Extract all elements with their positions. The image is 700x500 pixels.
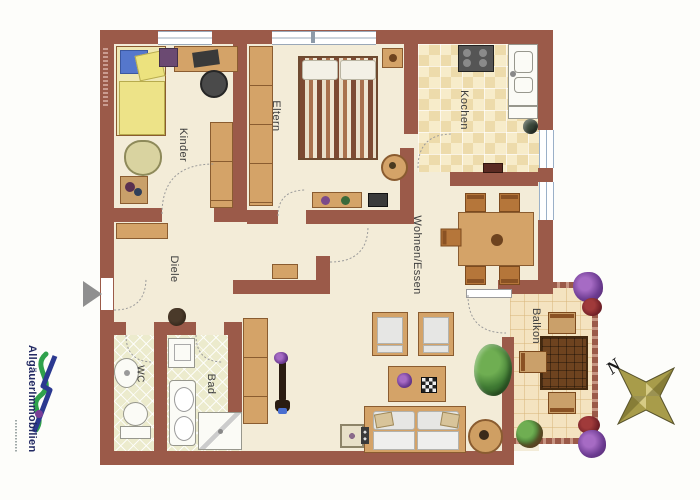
speaker bbox=[361, 427, 369, 444]
eltern-bed bbox=[298, 56, 378, 160]
shower bbox=[198, 412, 242, 450]
washing-machine bbox=[168, 338, 195, 368]
kitchen-corner-plant bbox=[523, 119, 538, 134]
balcony-flowers bbox=[582, 298, 602, 316]
kinder-desk bbox=[174, 46, 238, 72]
sofa bbox=[364, 406, 466, 453]
logo-ai-icon bbox=[34, 356, 55, 432]
dining-chair bbox=[465, 193, 486, 212]
room-label-kinder: Kinder bbox=[177, 128, 189, 162]
kitchen-counter bbox=[508, 44, 538, 106]
wall-kinder-south bbox=[114, 208, 162, 222]
balcony-table bbox=[540, 336, 588, 390]
wall-kinder-south-stub bbox=[214, 208, 233, 222]
hall-sideboard bbox=[116, 223, 168, 239]
wall-eltern-kochen bbox=[404, 44, 418, 134]
coffee-table bbox=[388, 366, 446, 402]
eltern-nightstand bbox=[382, 48, 403, 68]
room-label-balkon: Balkon bbox=[530, 308, 542, 344]
room-label-diele: Diele bbox=[168, 255, 180, 282]
balcony-flowers bbox=[578, 430, 606, 458]
room-label-wc: WC bbox=[135, 365, 146, 382]
kitchen-mat bbox=[483, 163, 503, 173]
kinder-stool bbox=[159, 48, 178, 67]
hall-cabinet-tall bbox=[243, 318, 268, 424]
entrance-opening bbox=[101, 278, 113, 310]
dining-chair bbox=[499, 266, 520, 285]
armchair bbox=[418, 312, 454, 356]
agency-logo: AllgäuerImmobilien bbox=[16, 345, 55, 452]
window-dining-lower bbox=[539, 182, 554, 220]
kinder-bed-blanket bbox=[119, 81, 165, 135]
wall-eltern-south-left bbox=[247, 210, 278, 224]
eltern-sideboard bbox=[312, 192, 362, 208]
balcony-chair bbox=[548, 392, 576, 414]
wall-bad-east bbox=[228, 335, 242, 413]
chessboard bbox=[421, 377, 437, 393]
kitchen-faucet bbox=[510, 71, 516, 77]
wall-wc-north bbox=[114, 322, 126, 335]
dining-chair bbox=[499, 193, 520, 212]
window-eltern bbox=[272, 31, 376, 45]
wall-bottom bbox=[100, 451, 514, 465]
dining-chair bbox=[465, 266, 486, 285]
kinder-desk-chair bbox=[200, 70, 228, 98]
dining-chair bbox=[441, 229, 462, 247]
eltern-stool bbox=[381, 154, 408, 181]
window-dining-upper bbox=[539, 130, 554, 168]
room-label-kochen: Kochen bbox=[458, 90, 470, 130]
eltern-tv bbox=[368, 193, 388, 207]
window-kinder bbox=[158, 31, 212, 45]
logo-company-name: AllgäuerImmobilien bbox=[26, 345, 38, 452]
floor-plan: Kinder Eltern Kochen Wohnen/Essen Diele … bbox=[0, 0, 700, 500]
entrance-arrow bbox=[83, 281, 102, 307]
room-label-eltern: Eltern bbox=[270, 100, 282, 131]
room-label-bad: Bad bbox=[205, 374, 217, 395]
kinder-toybox bbox=[120, 176, 148, 204]
logo-leaf-icon bbox=[36, 354, 47, 430]
wall-bath-north-east bbox=[224, 322, 242, 335]
eltern-pillow-left bbox=[302, 60, 338, 80]
kinder-wardrobe bbox=[210, 122, 233, 208]
window-mullion bbox=[311, 31, 315, 43]
kitchen-cabinet bbox=[508, 106, 538, 119]
logo-dot-icon bbox=[35, 410, 43, 418]
side-table-round bbox=[468, 419, 503, 454]
armchair bbox=[372, 312, 408, 356]
kitchen-sink bbox=[514, 51, 533, 73]
kinder-cradle bbox=[124, 140, 162, 176]
balcony-door-leaf bbox=[466, 289, 512, 298]
wall-wc-bad-divider bbox=[154, 335, 167, 451]
wall-hall-stub bbox=[316, 256, 330, 294]
room-label-wohnen-essen: Wohnen/Essen bbox=[411, 215, 423, 294]
balcony-chair bbox=[519, 351, 547, 373]
balcony-plant bbox=[516, 420, 543, 448]
compass: N bbox=[601, 354, 686, 436]
wall-right-upper bbox=[538, 30, 553, 130]
eltern-pillow-right bbox=[340, 60, 376, 80]
deco-vase bbox=[272, 352, 294, 416]
dining-table bbox=[458, 212, 534, 266]
kinder-laptop bbox=[192, 49, 220, 67]
wall-kitchen-south bbox=[450, 172, 538, 186]
compass-north-label: N bbox=[601, 354, 625, 379]
kitchen-stove bbox=[458, 45, 494, 72]
sofa-pillow bbox=[440, 412, 460, 429]
bath-vanity bbox=[169, 380, 196, 446]
wall-right-pier bbox=[538, 168, 553, 182]
balcony-chair bbox=[548, 312, 576, 334]
wc-toilet bbox=[120, 402, 152, 442]
living-plant bbox=[474, 344, 512, 396]
hall-shelf bbox=[272, 264, 298, 279]
table-flowers bbox=[397, 373, 412, 388]
wall-watermark-text bbox=[103, 48, 108, 106]
kitchen-sink-2 bbox=[514, 77, 533, 93]
wall-eltern-south-right bbox=[306, 210, 414, 224]
